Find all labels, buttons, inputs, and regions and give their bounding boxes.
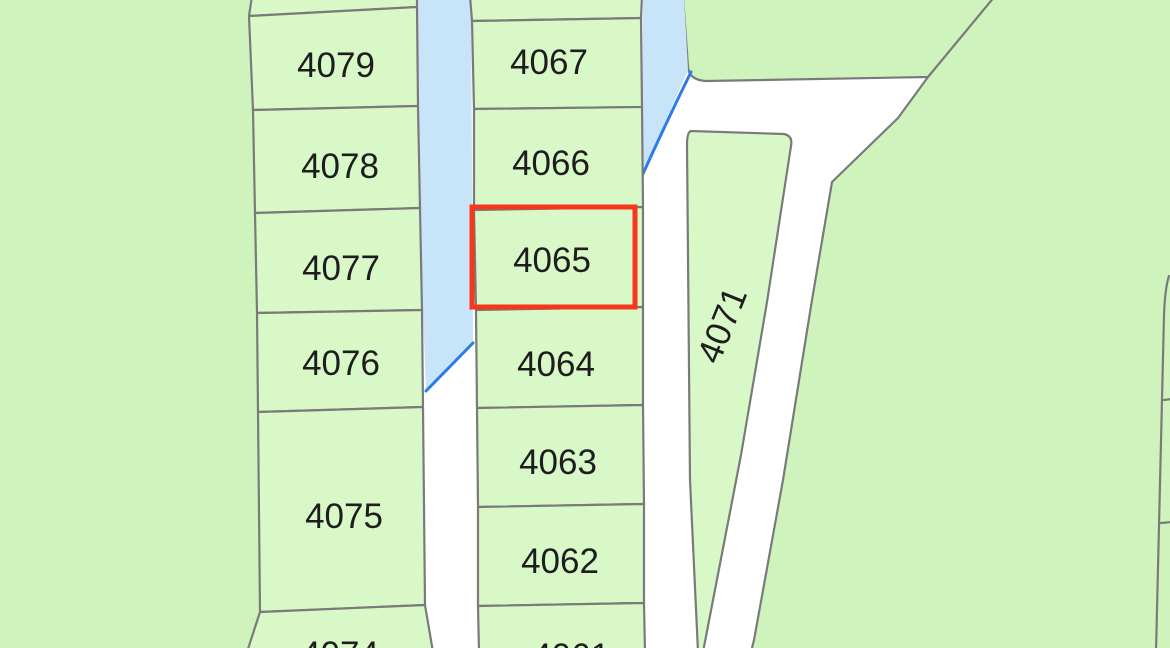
parcel-label-4065: 4065	[513, 241, 591, 280]
parcel-label-4076: 4076	[302, 344, 380, 383]
parcel-label-4075: 4075	[305, 497, 383, 536]
parcel-label-4079: 4079	[297, 46, 375, 85]
map-canvas[interactable]: 4079 4078 4077 4076 4075 4074 4067 4066 …	[0, 0, 1170, 648]
stream-water	[417, 0, 473, 391]
parcel-label-4077: 4077	[302, 249, 380, 288]
parcel-label-4066: 4066	[512, 144, 590, 183]
parcel-label-4067: 4067	[510, 43, 588, 82]
map-viewport[interactable]: 4079 4078 4077 4076 4075 4074 4067 4066 …	[0, 0, 1170, 648]
parcel-label-4078: 4078	[301, 147, 379, 186]
parcel-label-4074: 4074	[301, 635, 379, 648]
parcel-label-4061: 4061	[532, 637, 610, 648]
parcel-label-4063: 4063	[519, 443, 597, 482]
parcel-label-4064: 4064	[517, 345, 595, 384]
parcel-label-4062: 4062	[521, 542, 599, 581]
area-west[interactable]	[0, 0, 260, 648]
